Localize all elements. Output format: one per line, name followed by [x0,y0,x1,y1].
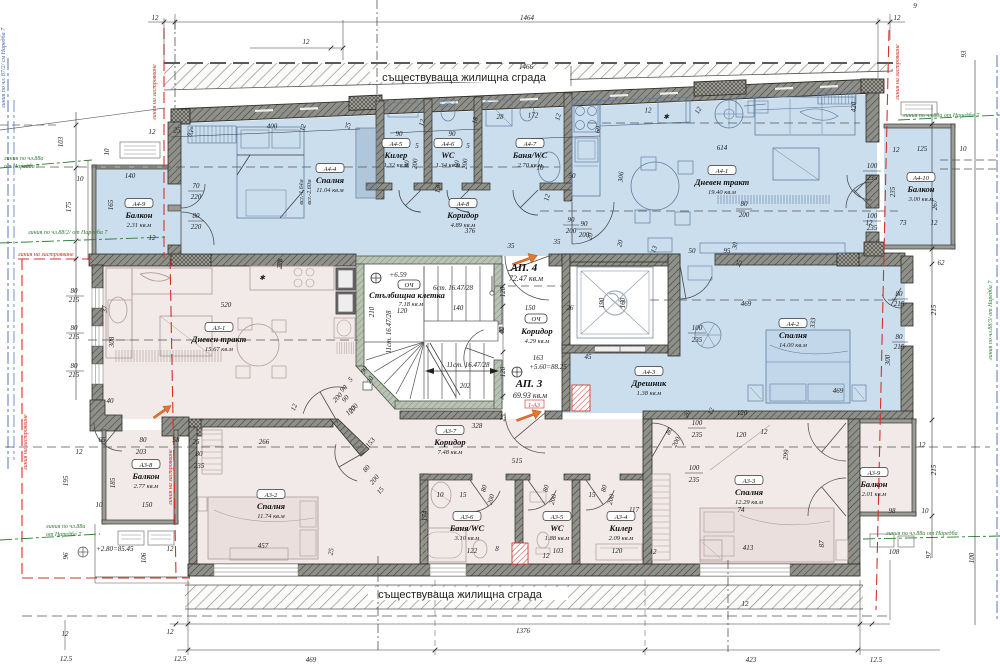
svg-text:12: 12 [893,146,901,154]
svg-text:А3-8: А3-8 [139,462,153,469]
svg-text:1466: 1466 [519,63,534,71]
svg-text:12: 12 [650,548,658,556]
svg-text:185: 185 [109,477,117,488]
svg-text:12.5: 12.5 [60,655,73,663]
svg-text:Коридор: Коридор [520,326,552,336]
svg-text:90: 90 [449,130,457,138]
svg-text:всг.-1.64м: всг.-1.64м [298,179,305,204]
svg-text:WC: WC [550,523,564,533]
svg-text:299: 299 [782,449,791,461]
svg-text:линия по чл.88а от Наредба: линия по чл.88а от Наредба [885,530,958,537]
svg-text:140: 140 [125,172,136,180]
svg-text:278: 278 [276,258,285,270]
svg-text:линия по чл.88а: линия по чл.88а [3,156,43,162]
svg-text:12: 12 [76,448,84,456]
svg-text:235: 235 [194,462,205,470]
svg-text:328: 328 [471,422,483,430]
svg-text:50: 50 [689,247,697,255]
svg-text:от Наредба 7: от Наредба 7 [46,531,82,538]
svg-text:11ст. 16.47/28: 11ст. 16.47/28 [447,361,490,369]
svg-text:А4-6: А4-6 [441,141,455,148]
svg-text:3.10 кв.м: 3.10 кв.м [454,535,480,542]
svg-text:120: 120 [612,547,623,555]
svg-text:12: 12 [167,545,175,553]
svg-text:+6.59: +6.59 [390,271,407,279]
svg-text:210: 210 [368,306,376,317]
svg-text:130: 130 [434,182,443,194]
svg-text:28: 28 [497,113,505,121]
svg-text:7.48 кв.м: 7.48 кв.м [438,449,463,456]
svg-text:45: 45 [585,353,593,361]
svg-text:12.5: 12.5 [174,655,187,663]
svg-text:Балкон: Балкон [860,479,888,489]
svg-text:А3-3: А3-3 [742,478,756,485]
svg-text:ОЧ: ОЧ [405,282,414,289]
svg-text:73: 73 [900,219,908,227]
svg-text:А3-9: А3-9 [867,470,881,477]
svg-text:97: 97 [925,551,933,559]
svg-text:А3-4: А3-4 [614,514,628,521]
svg-text:108: 108 [889,548,900,556]
svg-text:5: 5 [466,142,470,150]
svg-text:Балкон: Балкон [907,184,935,194]
svg-text:А3-6: А3-6 [460,514,474,521]
svg-text:12: 12 [303,38,311,46]
svg-text:15: 15 [589,491,597,499]
svg-text:120: 120 [736,431,747,439]
svg-text:125: 125 [917,145,928,153]
svg-text:А3-5: А3-5 [550,514,564,521]
svg-text:12: 12 [742,600,750,608]
svg-text:линия по чл.88а от Наредба 7: линия по чл.88а от Наредба 7 [902,112,980,119]
svg-text:12: 12 [894,14,902,22]
svg-text:235: 235 [692,431,703,439]
svg-text:линия по чл. 87/2/ см Наредба: линия по чл. 87/2/ см Наредба 7 [0,27,7,109]
svg-text:линия на застрояване: линия на застрояване [895,44,901,101]
svg-text:8: 8 [495,545,499,553]
svg-text:14.00 кв.м: 14.00 кв.м [779,342,807,349]
svg-text:10: 10 [437,491,445,499]
svg-text:50: 50 [569,172,577,180]
svg-text:174: 174 [421,510,429,521]
svg-text:12: 12 [919,441,927,449]
svg-text:линия на застрояване: линия на застрояване [17,252,74,258]
svg-text:АП. 4: АП. 4 [510,262,538,274]
svg-text:100: 100 [968,552,976,563]
svg-text:35: 35 [553,238,562,246]
svg-text:40: 40 [107,397,115,405]
svg-text:12: 12 [645,107,653,115]
svg-text:515: 515 [512,457,523,465]
svg-text:150: 150 [142,501,153,509]
svg-text:80: 80 [140,436,148,444]
svg-text:215: 215 [69,371,80,379]
svg-text:1.38 кв.м: 1.38 кв.м [637,390,662,397]
svg-text:150: 150 [525,304,536,312]
svg-text:376: 376 [464,227,476,235]
svg-text:65: 65 [99,436,107,444]
svg-text:469: 469 [741,300,752,308]
svg-text:200: 200 [411,158,420,170]
svg-text:333: 333 [808,317,817,330]
svg-text:А4-1: А4-1 [715,168,729,175]
svg-text:12: 12 [149,128,157,136]
svg-text:103: 103 [553,547,564,555]
svg-text:10: 10 [960,145,968,153]
svg-text:80: 80 [71,362,79,370]
svg-text:80: 80 [193,212,201,220]
svg-text:98: 98 [889,507,897,515]
svg-text:11.74 кв.м: 11.74 кв.м [257,513,284,520]
svg-text:4.29 кв.м: 4.29 кв.м [525,338,550,345]
svg-text:Баня/WC: Баня/WC [449,523,485,533]
svg-text:235: 235 [889,186,897,197]
svg-text:1376: 1376 [516,627,531,635]
svg-text:215: 215 [69,296,80,304]
svg-text:АП. 3: АП. 3 [515,378,543,390]
svg-text:300: 300 [884,354,892,366]
svg-text:12: 12 [167,628,175,636]
svg-text:215: 215 [930,304,938,315]
svg-text:Коридор: Коридор [446,210,478,220]
svg-text:10: 10 [103,148,111,156]
svg-text:10: 10 [96,501,104,509]
svg-text:103: 103 [57,136,65,147]
svg-text:80: 80 [71,287,79,295]
svg-text:Коридор: Коридор [433,437,465,447]
svg-text:10: 10 [922,507,930,515]
svg-text:200: 200 [461,158,470,170]
svg-text:от Наредба 7: от Наредба 7 [4,163,40,170]
svg-text:190: 190 [598,297,606,308]
svg-text:100: 100 [692,419,703,427]
svg-text:215: 215 [894,343,905,351]
svg-text:15.67 кв.м: 15.67 кв.м [205,346,233,353]
svg-text:12: 12 [761,428,769,436]
svg-text:WC: WC [441,150,455,160]
svg-text:160: 160 [619,297,627,308]
svg-text:12: 12 [931,219,939,227]
svg-text:А3-7: А3-7 [443,428,457,435]
svg-text:69.93 кв.м: 69.93 кв.м [513,391,547,400]
svg-text:203: 203 [136,448,147,456]
svg-text:80: 80 [71,324,79,332]
svg-text:100: 100 [867,162,878,170]
svg-text:Килер: Килер [384,150,408,160]
svg-text:235: 235 [867,224,878,232]
svg-text:220: 220 [191,223,202,231]
svg-text:172: 172 [528,112,539,120]
svg-text:90: 90 [568,216,576,224]
svg-text:163: 163 [533,354,544,362]
svg-text:9: 9 [913,2,917,10]
svg-text:Баня/WC: Баня/WC [512,150,548,160]
svg-text:всг.-2.60м: всг.-2.60м [307,179,313,204]
svg-text:10: 10 [77,175,85,183]
svg-text:520: 520 [221,301,232,309]
svg-text:Дневен тракт: Дневен тракт [694,177,750,187]
svg-text:19.40 кв.м: 19.40 кв.м [708,189,736,196]
svg-text:106: 106 [140,552,148,563]
svg-text:72.47 кв.м: 72.47 кв.м [509,274,543,283]
svg-text:87: 87 [818,540,826,548]
svg-text:1464: 1464 [520,14,535,22]
svg-text:А4-7: А4-7 [523,141,537,148]
svg-text:А4-2: А4-2 [786,321,800,328]
svg-text:+5.60=88.25: +5.60=88.25 [529,363,567,371]
svg-text:80: 80 [896,333,904,341]
svg-text:11.04 кв.м: 11.04 кв.м [316,187,343,194]
svg-text:35: 35 [507,242,516,250]
svg-text:215: 215 [930,464,938,475]
svg-text:306: 306 [616,171,625,184]
svg-text:1.34 кв.м: 1.34 кв.м [436,162,461,169]
svg-text:614: 614 [717,144,728,152]
svg-text:А4-5: А4-5 [389,141,403,148]
svg-text:Спалня: Спалня [735,487,764,497]
svg-text:215: 215 [69,333,80,341]
svg-text:80: 80 [196,450,204,458]
svg-text:100: 100 [689,464,700,472]
svg-text:420: 420 [850,101,858,112]
svg-text:12.5: 12.5 [870,656,883,664]
svg-text:Спалня: Спалня [257,501,286,511]
svg-text:80: 80 [896,290,904,298]
svg-text:2.31 кв.м: 2.31 кв.м [127,222,152,229]
svg-text:+2.80=85.45: +2.80=85.45 [96,545,134,553]
svg-text:25: 25 [498,413,507,422]
svg-text:37: 37 [101,305,109,314]
svg-text:Дневен тракт: Дневен тракт [191,334,247,344]
svg-text:А4-3: А4-3 [642,369,656,376]
svg-text:195: 195 [62,475,70,486]
svg-text:74: 74 [738,506,746,514]
svg-text:1.88 кв.м: 1.88 кв.м [545,535,570,542]
svg-text:25: 25 [174,127,182,135]
svg-text:70: 70 [193,182,201,190]
svg-text:2.01 кв.м: 2.01 кв.м [862,491,887,498]
svg-text:215: 215 [894,300,905,308]
svg-text:122: 122 [467,547,478,555]
svg-text:96: 96 [62,552,70,560]
svg-text:линия на застрояване: линия на застрояване [152,64,158,121]
svg-text:202: 202 [460,382,471,390]
svg-text:12: 12 [62,630,70,638]
svg-text:12: 12 [543,552,551,560]
svg-text:140: 140 [453,304,464,312]
svg-text:25: 25 [193,438,201,446]
svg-text:линия на застрояване: линия на застрояване [168,449,174,506]
svg-text:26: 26 [567,304,575,312]
svg-text:120: 120 [397,307,408,315]
svg-text:Стълбищна клетка: Стълбищна клетка [369,290,446,300]
svg-text:1.32 кв.м: 1.32 кв.м [384,162,409,169]
svg-text:12.29 кв.м: 12.29 кв.м [735,499,763,506]
svg-text:2.70 кв.м: 2.70 кв.м [518,162,543,169]
svg-text:линия по чл.88/3/ от Наредба 7: линия по чл.88/3/ от Наредба 7 [987,280,994,361]
svg-text:90: 90 [396,130,404,138]
svg-text:Спалня: Спалня [316,175,345,185]
svg-text:Балкон: Балкон [132,471,160,481]
svg-text:200: 200 [566,227,577,235]
svg-text:423: 423 [746,656,757,664]
svg-text:А4-10: А4-10 [912,175,930,182]
svg-text:А4-4: А4-4 [323,166,337,173]
svg-text:2.77 кв.м: 2.77 кв.м [134,483,159,490]
svg-text:266: 266 [259,438,270,446]
svg-text:235: 235 [867,174,878,182]
svg-text:Спалня: Спалня [779,330,808,340]
svg-text:120: 120 [737,409,748,417]
svg-text:11ст. 16.47/28: 11ст. 16.47/28 [385,310,393,353]
svg-text:90: 90 [581,220,589,228]
svg-text:съществуваща жилищна сграда: съществуваща жилищна сграда [382,72,547,84]
svg-text:40: 40 [498,327,506,335]
svg-text:95: 95 [724,247,732,255]
svg-text:линия по чл.88/2/ от Наредба 7: линия по чл.88/2/ от Наредба 7 [27,229,108,236]
svg-text:165: 165 [107,199,115,210]
svg-text:съществуваща жилищна сграда: съществуваща жилищна сграда [378,589,543,601]
svg-text:100: 100 [692,324,703,332]
svg-text:А3-2: А3-2 [264,492,278,499]
svg-text:ОЧ: ОЧ [532,316,541,323]
svg-text:308: 308 [108,336,116,348]
svg-text:457: 457 [258,542,269,550]
svg-text:линия на застрояване: линия на застрояване [23,414,29,471]
svg-text:Килер: Килер [609,523,633,533]
svg-text:80: 80 [741,200,749,208]
svg-text:3.00 кв.м: 3.00 кв.м [908,196,934,203]
svg-text:2.09 кв.м: 2.09 кв.м [609,535,634,542]
svg-text:100: 100 [867,212,878,220]
svg-text:5: 5 [415,142,419,150]
svg-text:15: 15 [460,491,468,499]
svg-text:58: 58 [173,436,181,444]
svg-text:А4-9: А4-9 [132,201,146,208]
svg-text:линия по чл.88а: линия по чл.88а [45,524,85,530]
svg-text:200: 200 [739,211,750,219]
svg-text:Дрешник: Дрешник [631,378,667,388]
svg-text:12: 12 [149,234,157,242]
svg-text:413: 413 [743,544,754,552]
svg-text:235: 235 [689,476,700,484]
svg-text:220: 220 [191,193,202,201]
svg-text:Балкон: Балкон [125,210,153,220]
svg-text:93: 93 [960,50,968,58]
svg-text:12: 12 [152,14,160,22]
svg-text:469: 469 [306,656,317,664]
svg-text:469: 469 [833,387,844,395]
svg-text:А4-8: А4-8 [456,201,470,208]
svg-text:62: 62 [938,259,946,267]
svg-text:400: 400 [267,123,278,131]
svg-text:175: 175 [65,201,73,212]
svg-text:А3-1: А3-1 [212,325,226,332]
svg-text:235: 235 [692,336,703,344]
